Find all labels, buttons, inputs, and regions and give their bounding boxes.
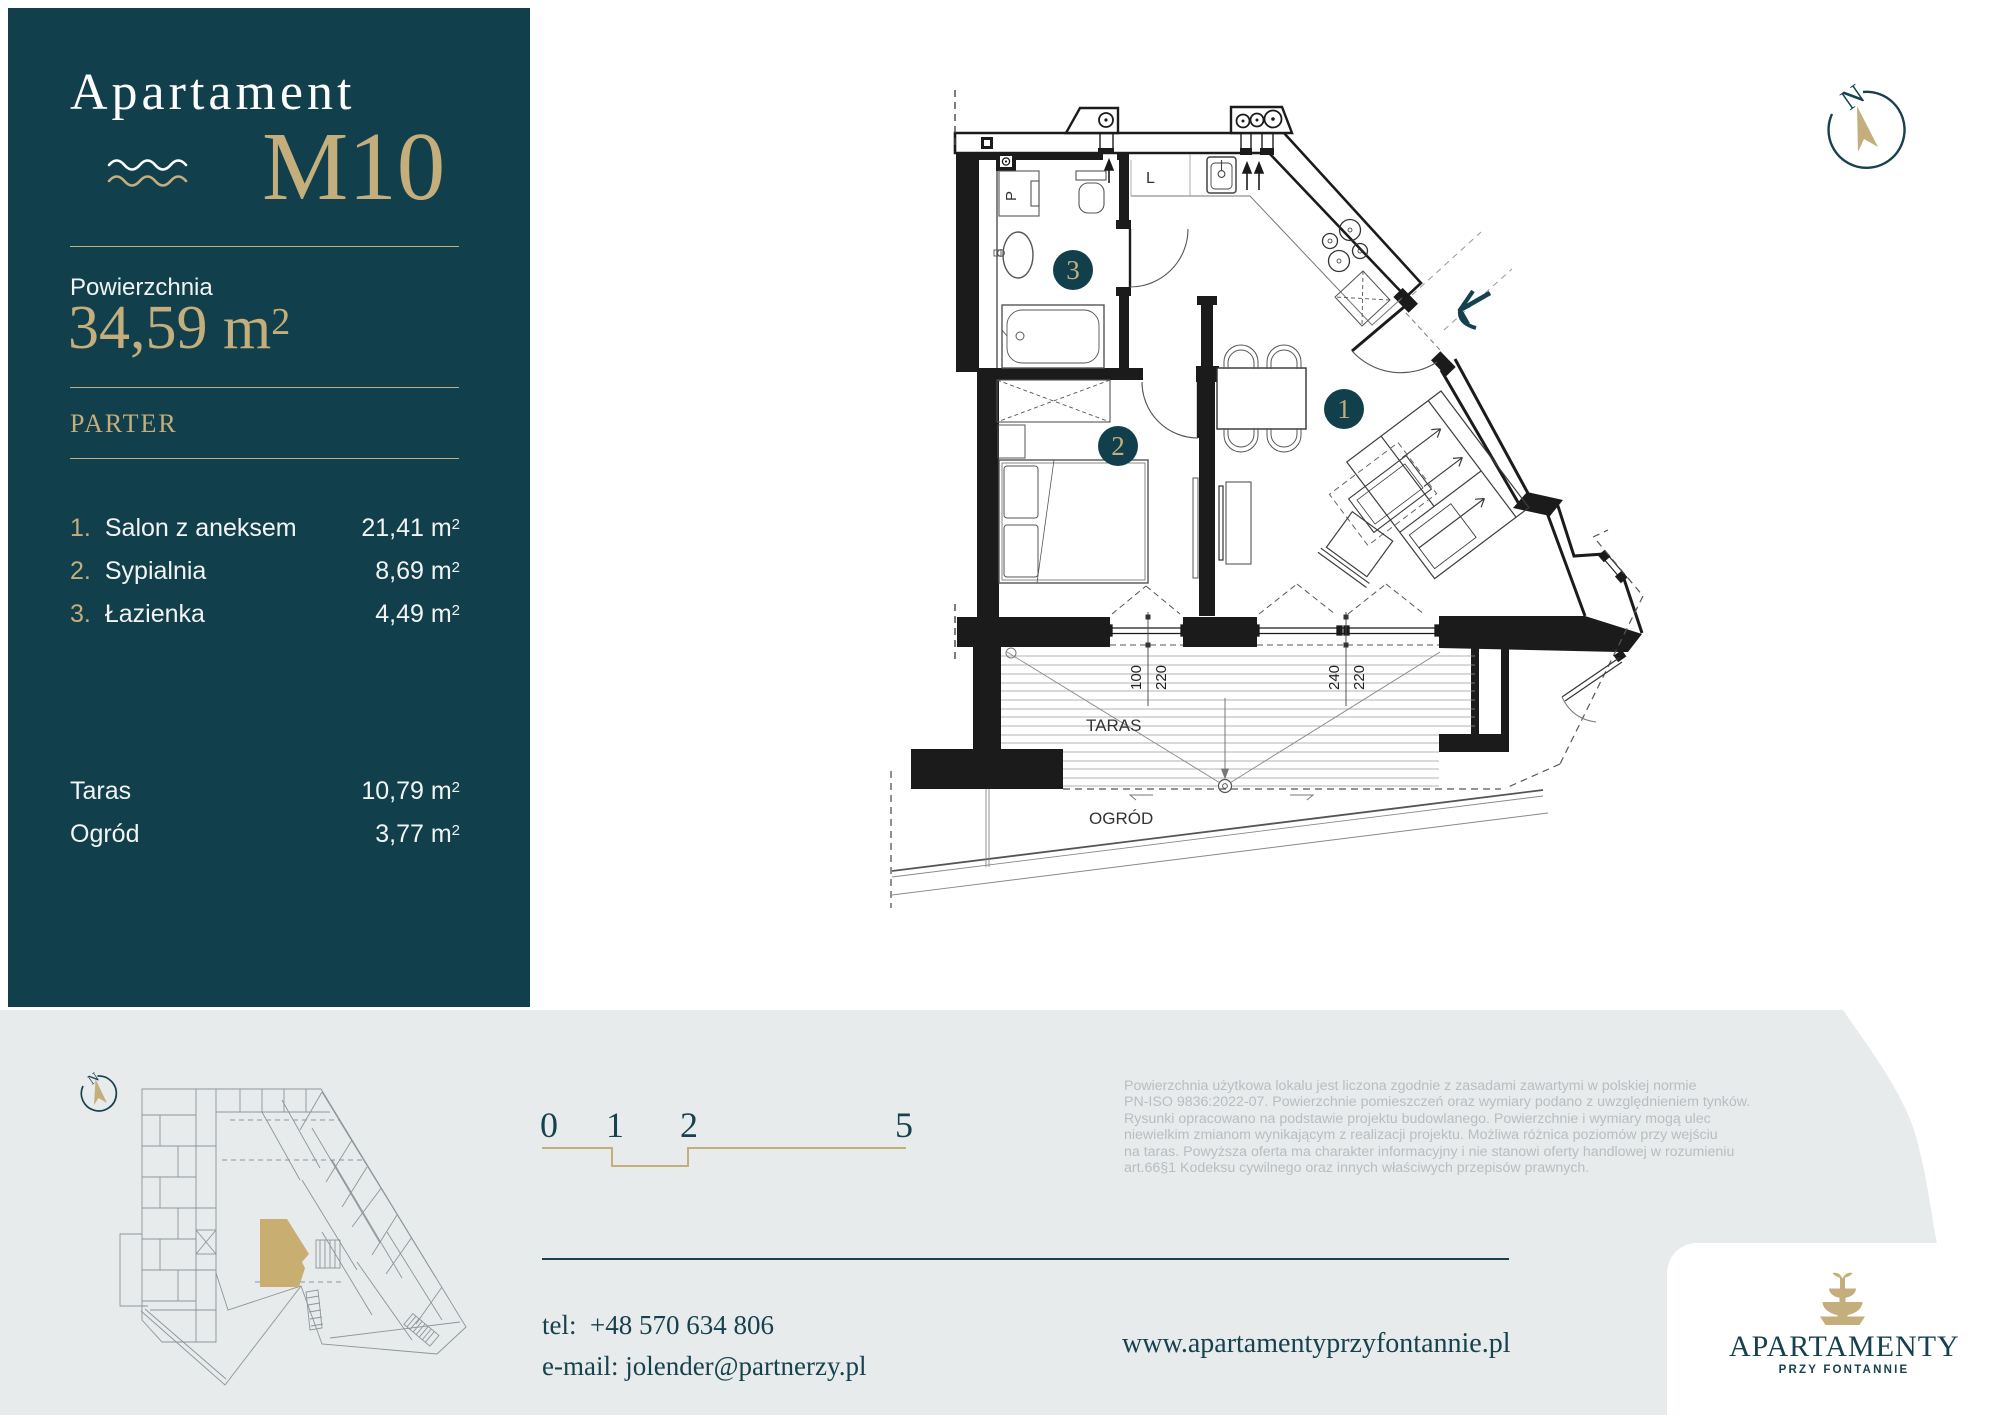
svg-text:N: N [85,1070,102,1088]
svg-text:220: 220 [1153,665,1170,690]
svg-text:100: 100 [1128,665,1145,690]
svg-text:OGRÓD: OGRÓD [1089,809,1153,828]
svg-text:2: 2 [1111,431,1125,461]
svg-text:N: N [1835,78,1871,116]
svg-text:240: 240 [1326,665,1343,690]
svg-text:1: 1 [1337,394,1351,424]
svg-text:L: L [1146,170,1155,187]
svg-text:3: 3 [1066,255,1080,285]
svg-text:TARAS: TARAS [1086,716,1141,735]
svg-text:P: P [1003,191,1020,201]
svg-text:220: 220 [1351,665,1368,690]
